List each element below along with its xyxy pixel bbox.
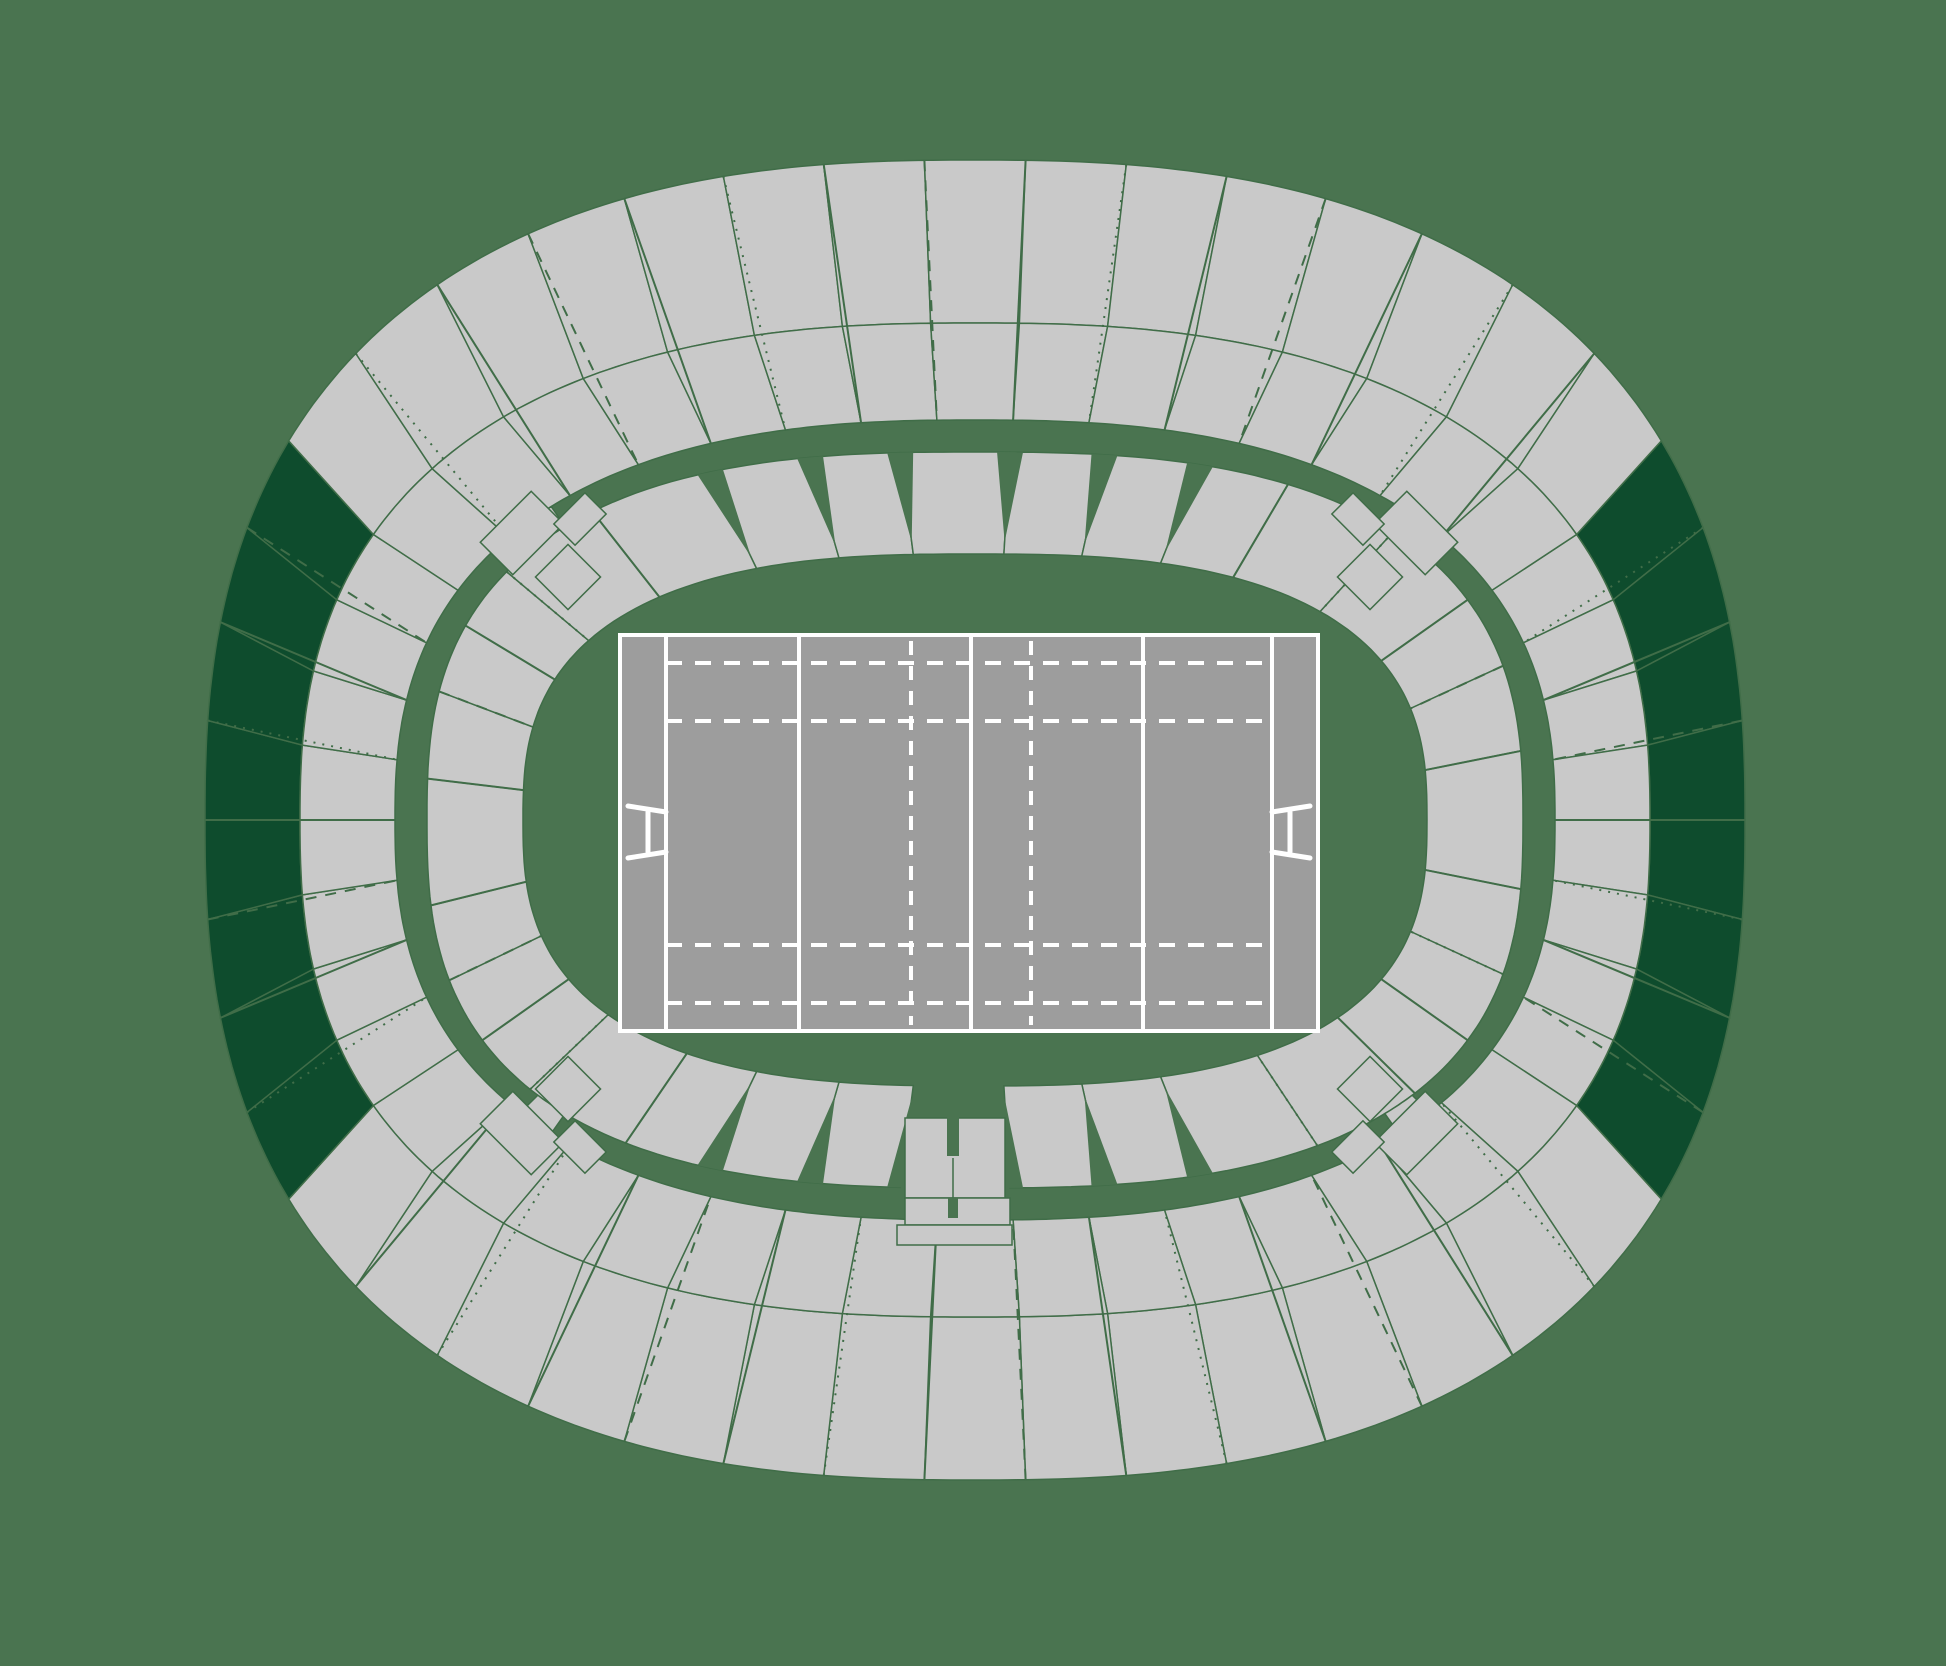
rugby-pitch — [620, 635, 1318, 1031]
seat-section[interactable] — [824, 160, 931, 326]
tunnel-gap — [947, 1114, 959, 1156]
stadium-seat-map — [0, 0, 1946, 1666]
seat-section[interactable] — [924, 1317, 1025, 1480]
seat-section[interactable] — [900, 452, 1010, 555]
seat-map-canvas — [0, 0, 1946, 1666]
seat-section[interactable] — [924, 160, 1025, 323]
seat-section[interactable] — [1019, 1314, 1126, 1480]
tunnel-gap — [948, 1198, 958, 1218]
seat-section[interactable] — [931, 323, 1020, 420]
seat-section[interactable] — [1425, 751, 1523, 889]
tunnel-block — [897, 1225, 1012, 1245]
player-tunnel — [897, 1114, 1012, 1245]
